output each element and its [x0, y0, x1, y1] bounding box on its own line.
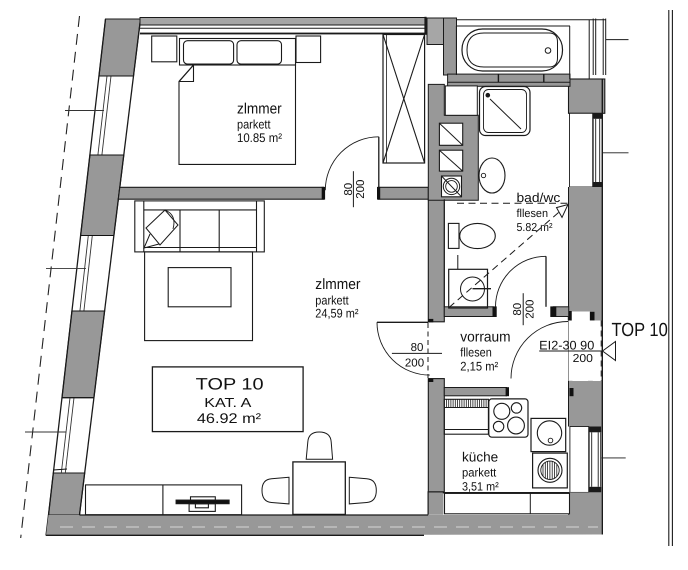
svg-text:KAT. A: KAT. A — [204, 395, 251, 410]
svg-text:fllesen: fllesen — [517, 208, 549, 220]
svg-text:EI2-30 90: EI2-30 90 — [539, 339, 594, 353]
svg-text:parkett: parkett — [462, 466, 497, 480]
svg-text:zlmmer: zlmmer — [237, 100, 282, 117]
svg-text:bad/wc: bad/wc — [517, 190, 561, 205]
svg-text:200: 200 — [573, 353, 593, 365]
svg-text:TOP 10: TOP 10 — [612, 320, 668, 341]
svg-text:vorraum: vorraum — [460, 329, 510, 345]
svg-text:5.82 m²: 5.82 m² — [517, 222, 553, 234]
svg-text:küche: küche — [462, 450, 498, 465]
svg-text:80: 80 — [411, 342, 424, 354]
svg-text:46.92 m²: 46.92 m² — [197, 410, 262, 426]
svg-text:80: 80 — [512, 303, 524, 316]
svg-text:TOP 10: TOP 10 — [196, 376, 264, 394]
svg-text:zlmmer: zlmmer — [315, 276, 360, 293]
svg-text:fllesen: fllesen — [460, 345, 492, 359]
svg-text:10.85 m²: 10.85 m² — [237, 131, 282, 145]
svg-text:2,15 m²: 2,15 m² — [460, 359, 498, 373]
svg-text:24,59 m²: 24,59 m² — [315, 307, 358, 321]
svg-text:3,51 m²: 3,51 m² — [462, 479, 499, 493]
svg-text:200: 200 — [355, 180, 367, 199]
svg-text:200: 200 — [405, 358, 424, 370]
svg-text:200: 200 — [525, 300, 537, 319]
svg-text:parkett: parkett — [237, 117, 271, 131]
